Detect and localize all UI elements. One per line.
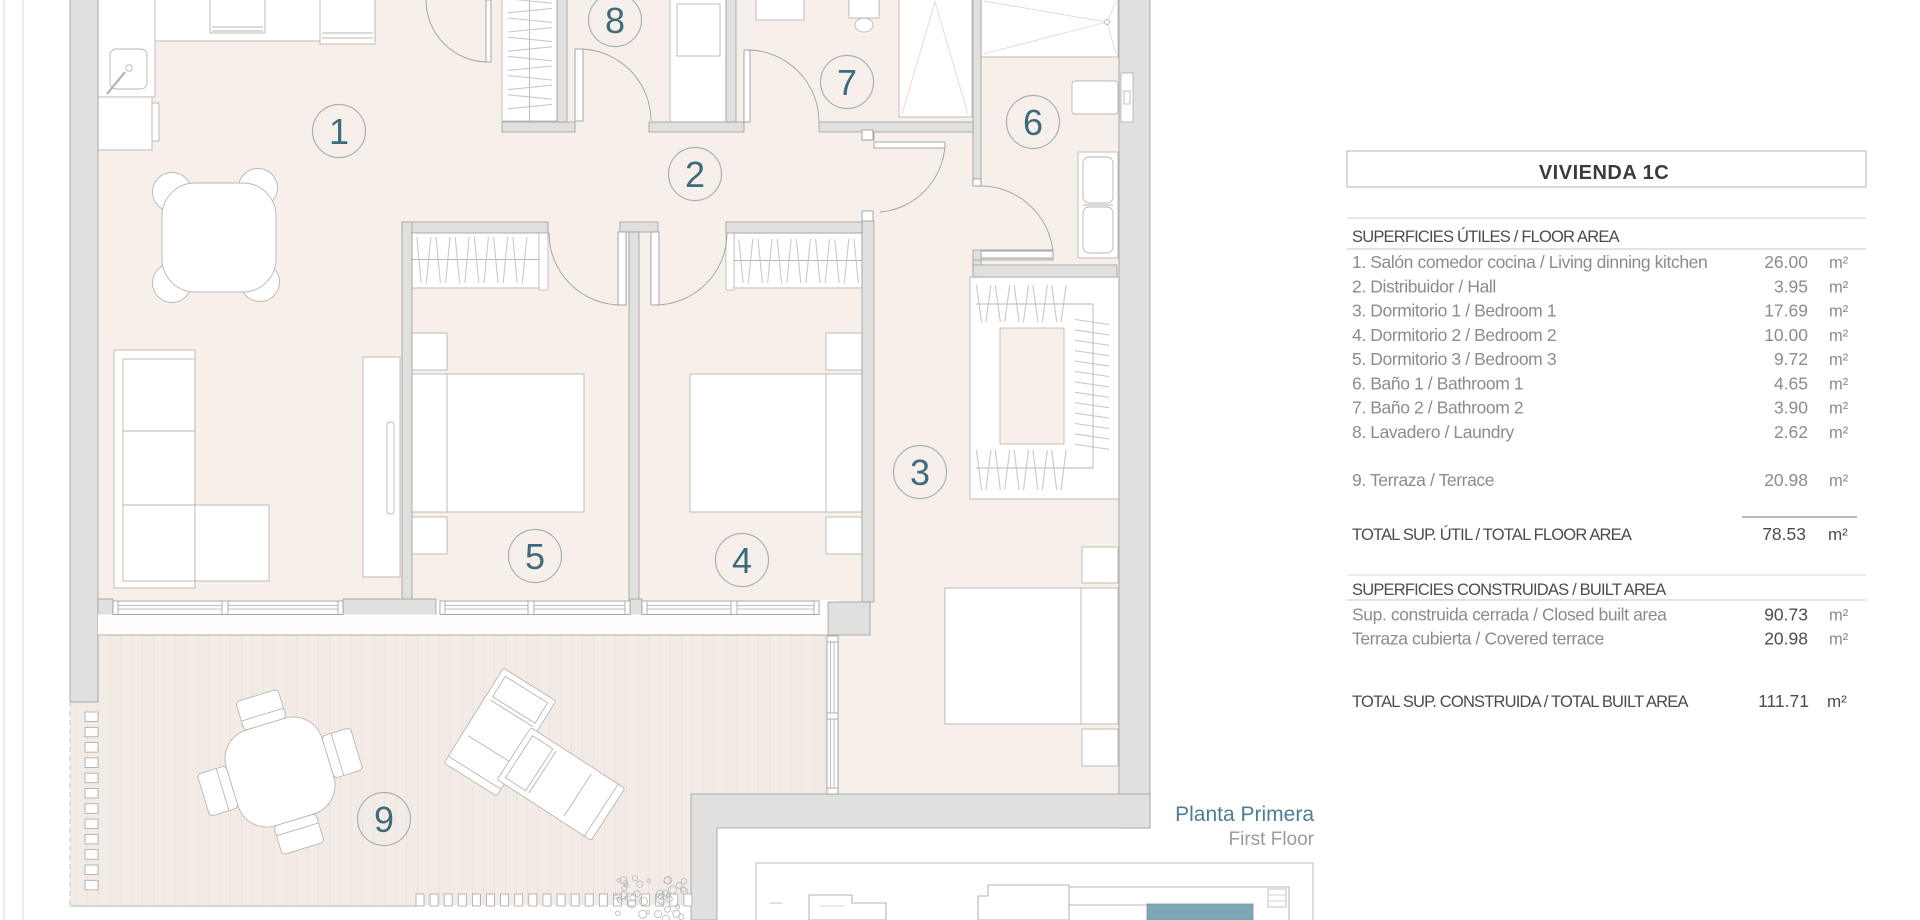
svg-text:7: 7 bbox=[837, 62, 857, 103]
svg-text:TOTAL SUP. ÚTIL / TOTAL FLOOR: TOTAL SUP. ÚTIL / TOTAL FLOOR AREA bbox=[1352, 525, 1632, 544]
svg-text:20.98: 20.98 bbox=[1764, 470, 1808, 490]
svg-text:5. Dormitorio 3 / Bedroom 3: 5. Dormitorio 3 / Bedroom 3 bbox=[1352, 349, 1556, 369]
svg-text:m²: m² bbox=[1829, 254, 1849, 272]
svg-text:First Floor: First Floor bbox=[1229, 829, 1315, 850]
svg-text:20.98: 20.98 bbox=[1764, 629, 1808, 649]
svg-text:9. Terraza / Terrace: 9. Terraza / Terrace bbox=[1352, 470, 1494, 490]
svg-text:78.53: 78.53 bbox=[1762, 524, 1806, 544]
svg-text:m²: m² bbox=[1828, 525, 1848, 544]
svg-text:SUPERFICIES ÚTILES / FLOOR ARE: SUPERFICIES ÚTILES / FLOOR AREA bbox=[1352, 227, 1620, 246]
svg-text:m²: m² bbox=[1829, 327, 1849, 345]
svg-text:5: 5 bbox=[525, 536, 545, 577]
svg-text:TOTAL SUP. CONSTRUIDA / TOTAL: TOTAL SUP. CONSTRUIDA / TOTAL BUILT AREA bbox=[1352, 693, 1688, 711]
svg-text:8. Lavadero / Laundry: 8. Lavadero / Laundry bbox=[1352, 422, 1515, 442]
svg-text:m²: m² bbox=[1829, 472, 1849, 490]
svg-text:m²: m² bbox=[1829, 278, 1849, 296]
svg-text:10.00: 10.00 bbox=[1764, 325, 1808, 345]
svg-text:6: 6 bbox=[1023, 102, 1043, 143]
svg-text:Terraza cubierta / Covered ter: Terraza cubierta / Covered terrace bbox=[1352, 629, 1604, 649]
svg-text:m²: m² bbox=[1829, 400, 1849, 418]
svg-text:1. Salón comedor cocina / Livi: 1. Salón comedor cocina / Living dinning… bbox=[1352, 252, 1707, 272]
svg-text:m²: m² bbox=[1829, 424, 1849, 442]
svg-text:4: 4 bbox=[732, 540, 752, 581]
svg-text:m²: m² bbox=[1829, 631, 1849, 649]
svg-text:4.65: 4.65 bbox=[1774, 373, 1808, 393]
svg-text:VIVIENDA 1C: VIVIENDA 1C bbox=[1539, 162, 1669, 184]
svg-text:90.73: 90.73 bbox=[1764, 605, 1808, 625]
svg-text:7. Baño 2 / Bathroom 2: 7. Baño 2 / Bathroom 2 bbox=[1352, 398, 1523, 418]
svg-text:2.62: 2.62 bbox=[1774, 422, 1808, 442]
svg-text:2. Distribuidor / Hall: 2. Distribuidor / Hall bbox=[1352, 276, 1496, 296]
svg-text:6. Baño 1 / Bathroom 1: 6. Baño 1 / Bathroom 1 bbox=[1352, 373, 1523, 393]
svg-text:m²: m² bbox=[1829, 375, 1849, 393]
svg-text:Planta Primera: Planta Primera bbox=[1175, 803, 1314, 826]
svg-text:9.72: 9.72 bbox=[1774, 349, 1808, 369]
svg-text:m²: m² bbox=[1829, 303, 1849, 321]
svg-text:m²: m² bbox=[1827, 692, 1847, 711]
svg-text:9: 9 bbox=[374, 799, 394, 840]
svg-text:26.00: 26.00 bbox=[1764, 252, 1808, 272]
svg-text:3.95: 3.95 bbox=[1774, 276, 1808, 296]
svg-text:m²: m² bbox=[1829, 607, 1849, 625]
svg-text:Sup. construida cerrada / Clos: Sup. construida cerrada / Closed built a… bbox=[1352, 605, 1667, 625]
svg-text:8: 8 bbox=[605, 0, 625, 41]
svg-text:111.71: 111.71 bbox=[1758, 691, 1809, 711]
svg-text:SUPERFICIES CONSTRUIDAS / BUIL: SUPERFICIES CONSTRUIDAS / BUILT AREA bbox=[1352, 581, 1666, 599]
svg-text:m²: m² bbox=[1829, 351, 1849, 369]
svg-text:3.90: 3.90 bbox=[1774, 398, 1808, 418]
svg-text:1: 1 bbox=[329, 111, 349, 152]
svg-text:3. Dormitorio 1 / Bedroom 1: 3. Dormitorio 1 / Bedroom 1 bbox=[1352, 301, 1556, 321]
svg-text:4. Dormitorio 2 / Bedroom 2: 4. Dormitorio 2 / Bedroom 2 bbox=[1352, 325, 1556, 345]
svg-text:3: 3 bbox=[910, 452, 930, 493]
svg-text:17.69: 17.69 bbox=[1764, 301, 1808, 321]
svg-text:2: 2 bbox=[685, 154, 705, 195]
